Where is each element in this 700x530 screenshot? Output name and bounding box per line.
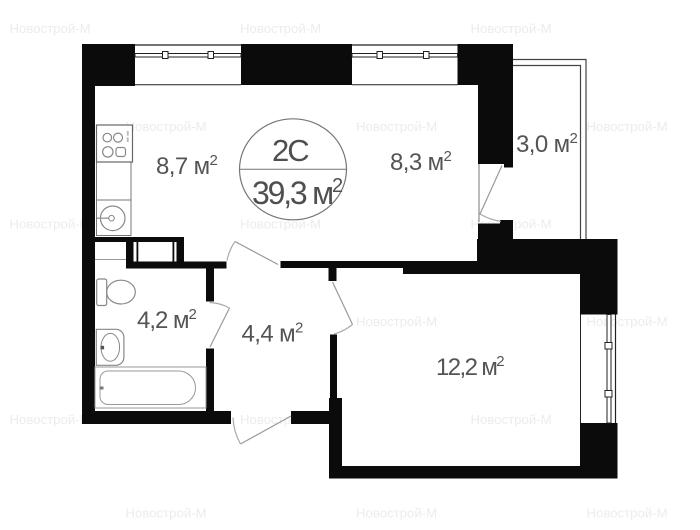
- svg-text:Новострой-М: Новострой-М: [471, 21, 552, 36]
- svg-text:Новострой-М: Новострой-М: [10, 21, 91, 36]
- svg-text:Новострой-М: Новострой-М: [356, 119, 437, 134]
- svg-text:Новострой-М: Новострой-М: [471, 412, 552, 427]
- svg-text:Новострой-М: Новострой-М: [356, 506, 437, 521]
- svg-text:Новострой-М: Новострой-М: [587, 506, 668, 521]
- svg-text:4,2 м2: 4,2 м2: [137, 306, 197, 334]
- svg-text:3,0 м2: 3,0 м2: [516, 130, 578, 158]
- svg-text:Новострой-М: Новострой-М: [587, 119, 668, 134]
- svg-text:Новострой-М: Новострой-М: [240, 21, 321, 36]
- svg-text:Новострой-М: Новострой-М: [356, 314, 437, 329]
- svg-text:Новострой-М: Новострой-М: [10, 217, 91, 232]
- svg-text:4,4 м2: 4,4 м2: [242, 320, 304, 348]
- svg-text:Новострой-М: Новострой-М: [126, 119, 207, 134]
- svg-text:2С: 2С: [272, 133, 309, 168]
- svg-text:39,3 м2: 39,3 м2: [252, 175, 343, 211]
- svg-text:12,2 м2: 12,2 м2: [436, 353, 504, 381]
- svg-text:8,7 м2: 8,7 м2: [156, 152, 218, 180]
- svg-text:8,3 м2: 8,3 м2: [390, 148, 452, 176]
- svg-text:Новострой-М: Новострой-М: [587, 314, 668, 329]
- svg-text:Новострой-М: Новострой-М: [126, 506, 207, 521]
- svg-text:Новострой-М: Новострой-М: [10, 412, 91, 427]
